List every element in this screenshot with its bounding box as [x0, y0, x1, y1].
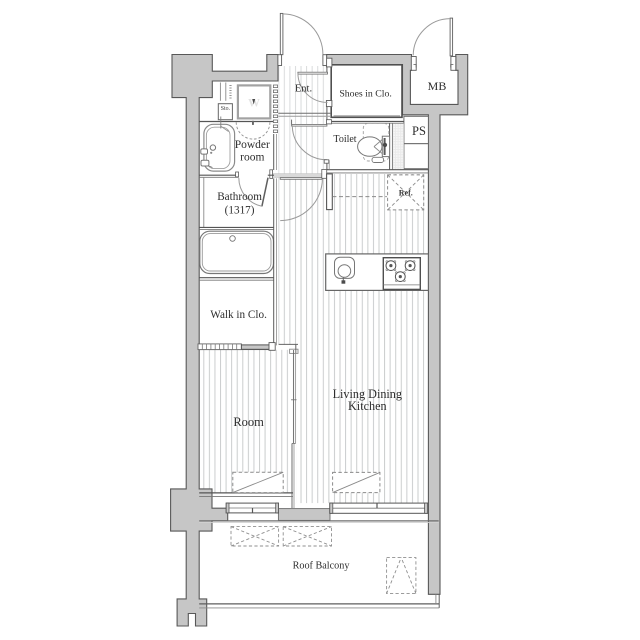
svg-text:(1317): (1317) [225, 204, 255, 216]
svg-text:Powder: Powder [235, 139, 270, 151]
svg-text:room: room [240, 151, 264, 163]
svg-text:MB: MB [428, 79, 447, 93]
svg-text:PS: PS [412, 124, 426, 138]
svg-text:Ref.: Ref. [399, 189, 413, 198]
svg-text:Toilet: Toilet [333, 134, 356, 145]
svg-text:Sto.: Sto. [221, 106, 231, 112]
svg-text:Bathroom: Bathroom [217, 191, 262, 203]
svg-text:Kitchen: Kitchen [348, 399, 387, 413]
svg-text:Walk in Clo.: Walk in Clo. [210, 309, 267, 321]
svg-text:Roof Balcony: Roof Balcony [293, 560, 351, 571]
svg-text:Ent.: Ent. [295, 84, 312, 95]
svg-text:Shoes in Clo.: Shoes in Clo. [339, 89, 392, 100]
svg-text:Room: Room [233, 415, 264, 429]
